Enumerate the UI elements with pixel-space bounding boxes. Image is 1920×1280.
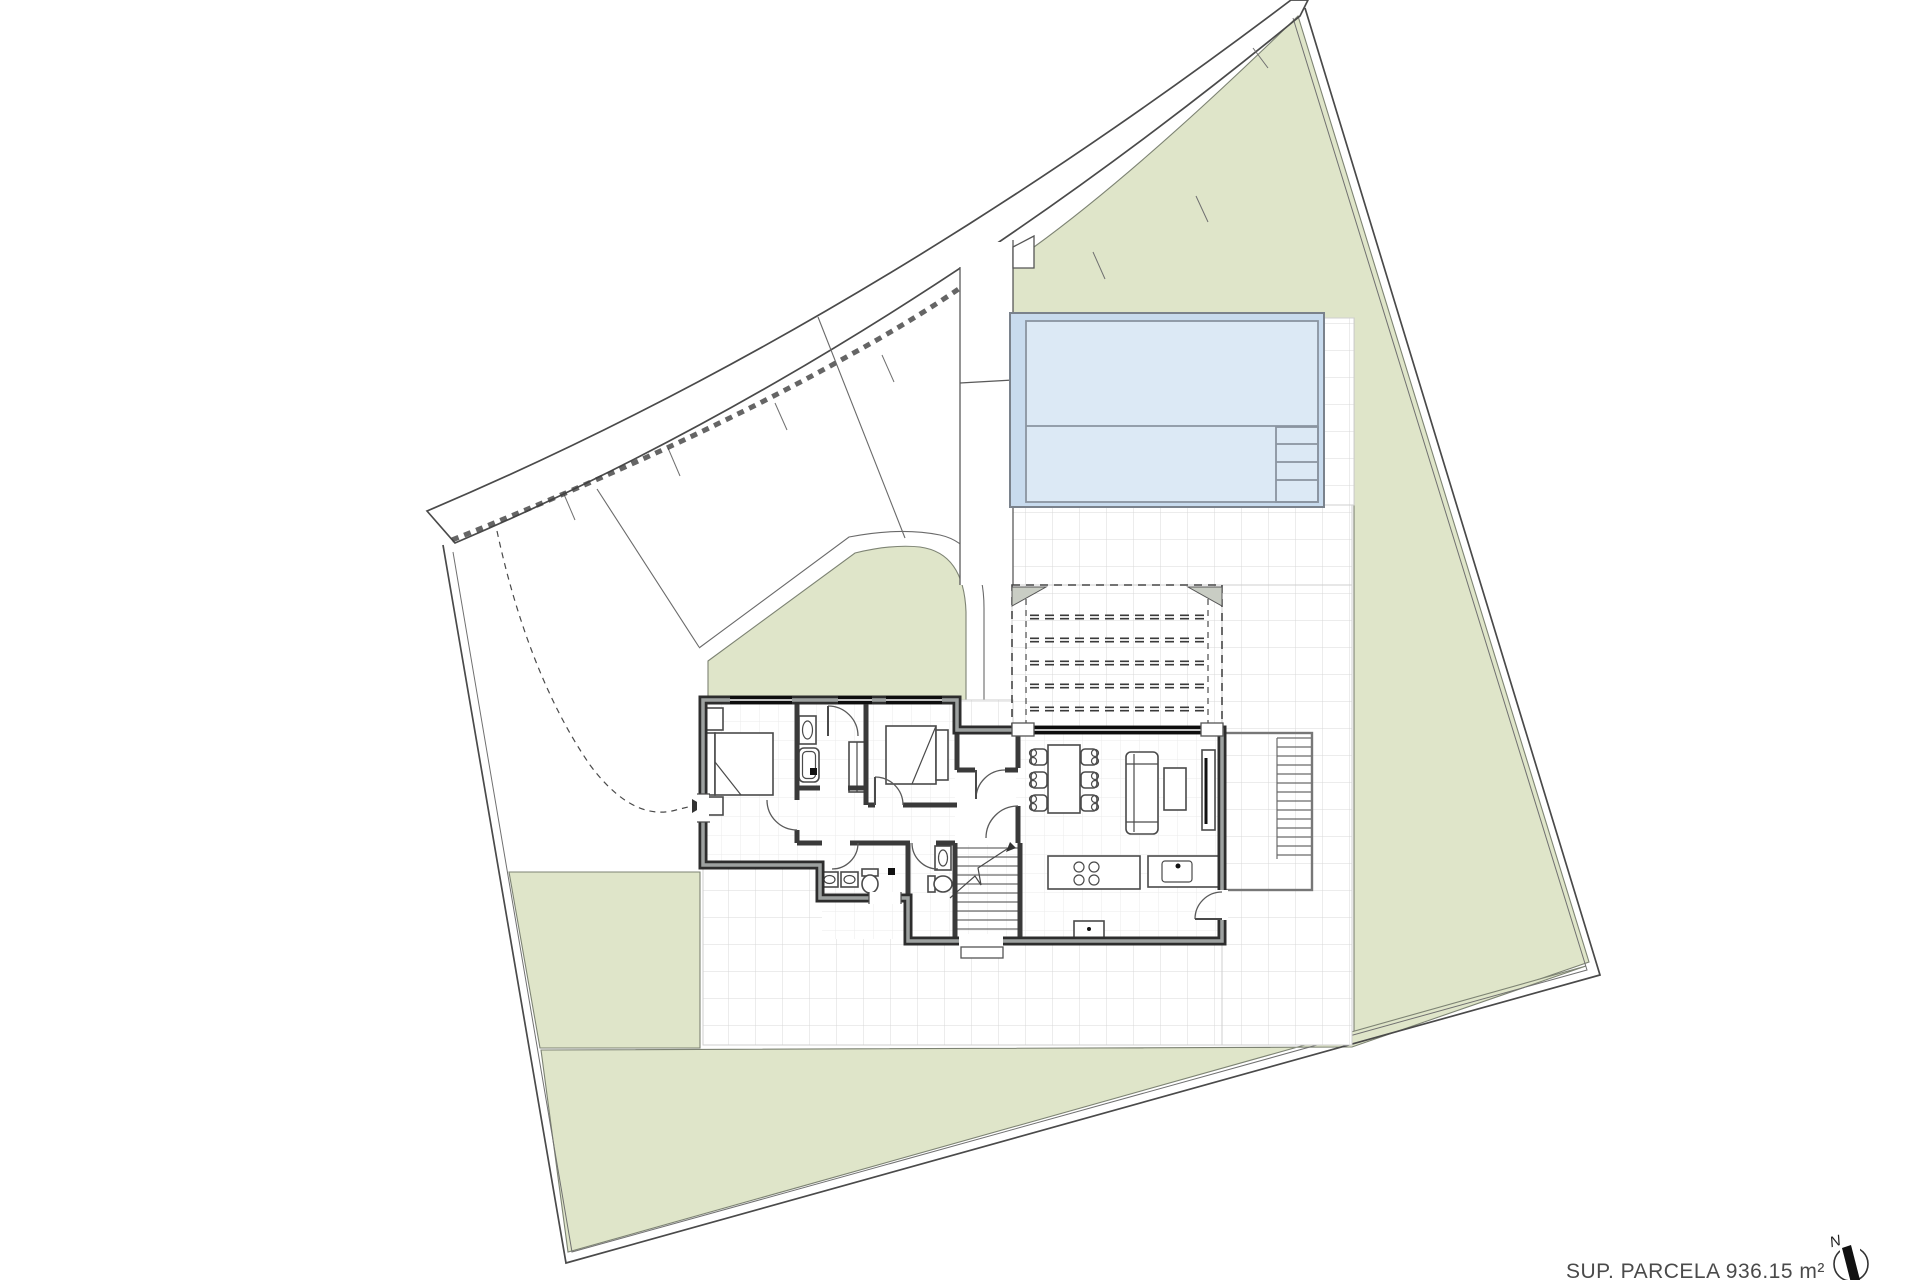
entrance-threshold — [961, 947, 1003, 958]
dining-table — [1048, 745, 1080, 813]
nightstand — [706, 708, 723, 730]
bed-mattress — [886, 726, 936, 784]
retaining-wall-hatch — [452, 252, 1008, 540]
bed-mattress — [715, 733, 773, 795]
toilet-bowl — [862, 875, 878, 893]
bathroom-1 — [799, 716, 819, 782]
coffee-table — [1164, 768, 1186, 810]
floor-drain — [888, 868, 895, 875]
bathroom-sink — [799, 716, 816, 744]
toilet-bowl — [934, 876, 952, 892]
tv-unit — [1202, 750, 1215, 830]
driveway-division-1 — [597, 489, 699, 647]
driveway-division-2 — [818, 317, 905, 538]
annotations: SUP. PARCELA 936.15 m² N — [1566, 1232, 1868, 1280]
lawn-southwest — [509, 872, 700, 1048]
lawn-island — [708, 546, 966, 700]
site-plan-page: SUP. PARCELA 936.15 m² N — [0, 0, 1920, 1280]
parcel-area-label: SUP. PARCELA 936.15 m² — [1566, 1260, 1825, 1280]
dining-area — [1030, 745, 1099, 813]
north-arrow-icon: N — [1828, 1232, 1868, 1280]
bed-headboard — [936, 730, 948, 780]
strip-gate — [1013, 236, 1034, 268]
swimming-pool — [1010, 313, 1324, 507]
access-path-dashed — [497, 531, 692, 812]
pool-water — [1026, 321, 1318, 502]
site-plan-canvas: SUP. PARCELA 936.15 m² N — [0, 0, 1920, 1280]
north-letter: N — [1828, 1232, 1843, 1251]
floor-drain — [810, 768, 817, 775]
